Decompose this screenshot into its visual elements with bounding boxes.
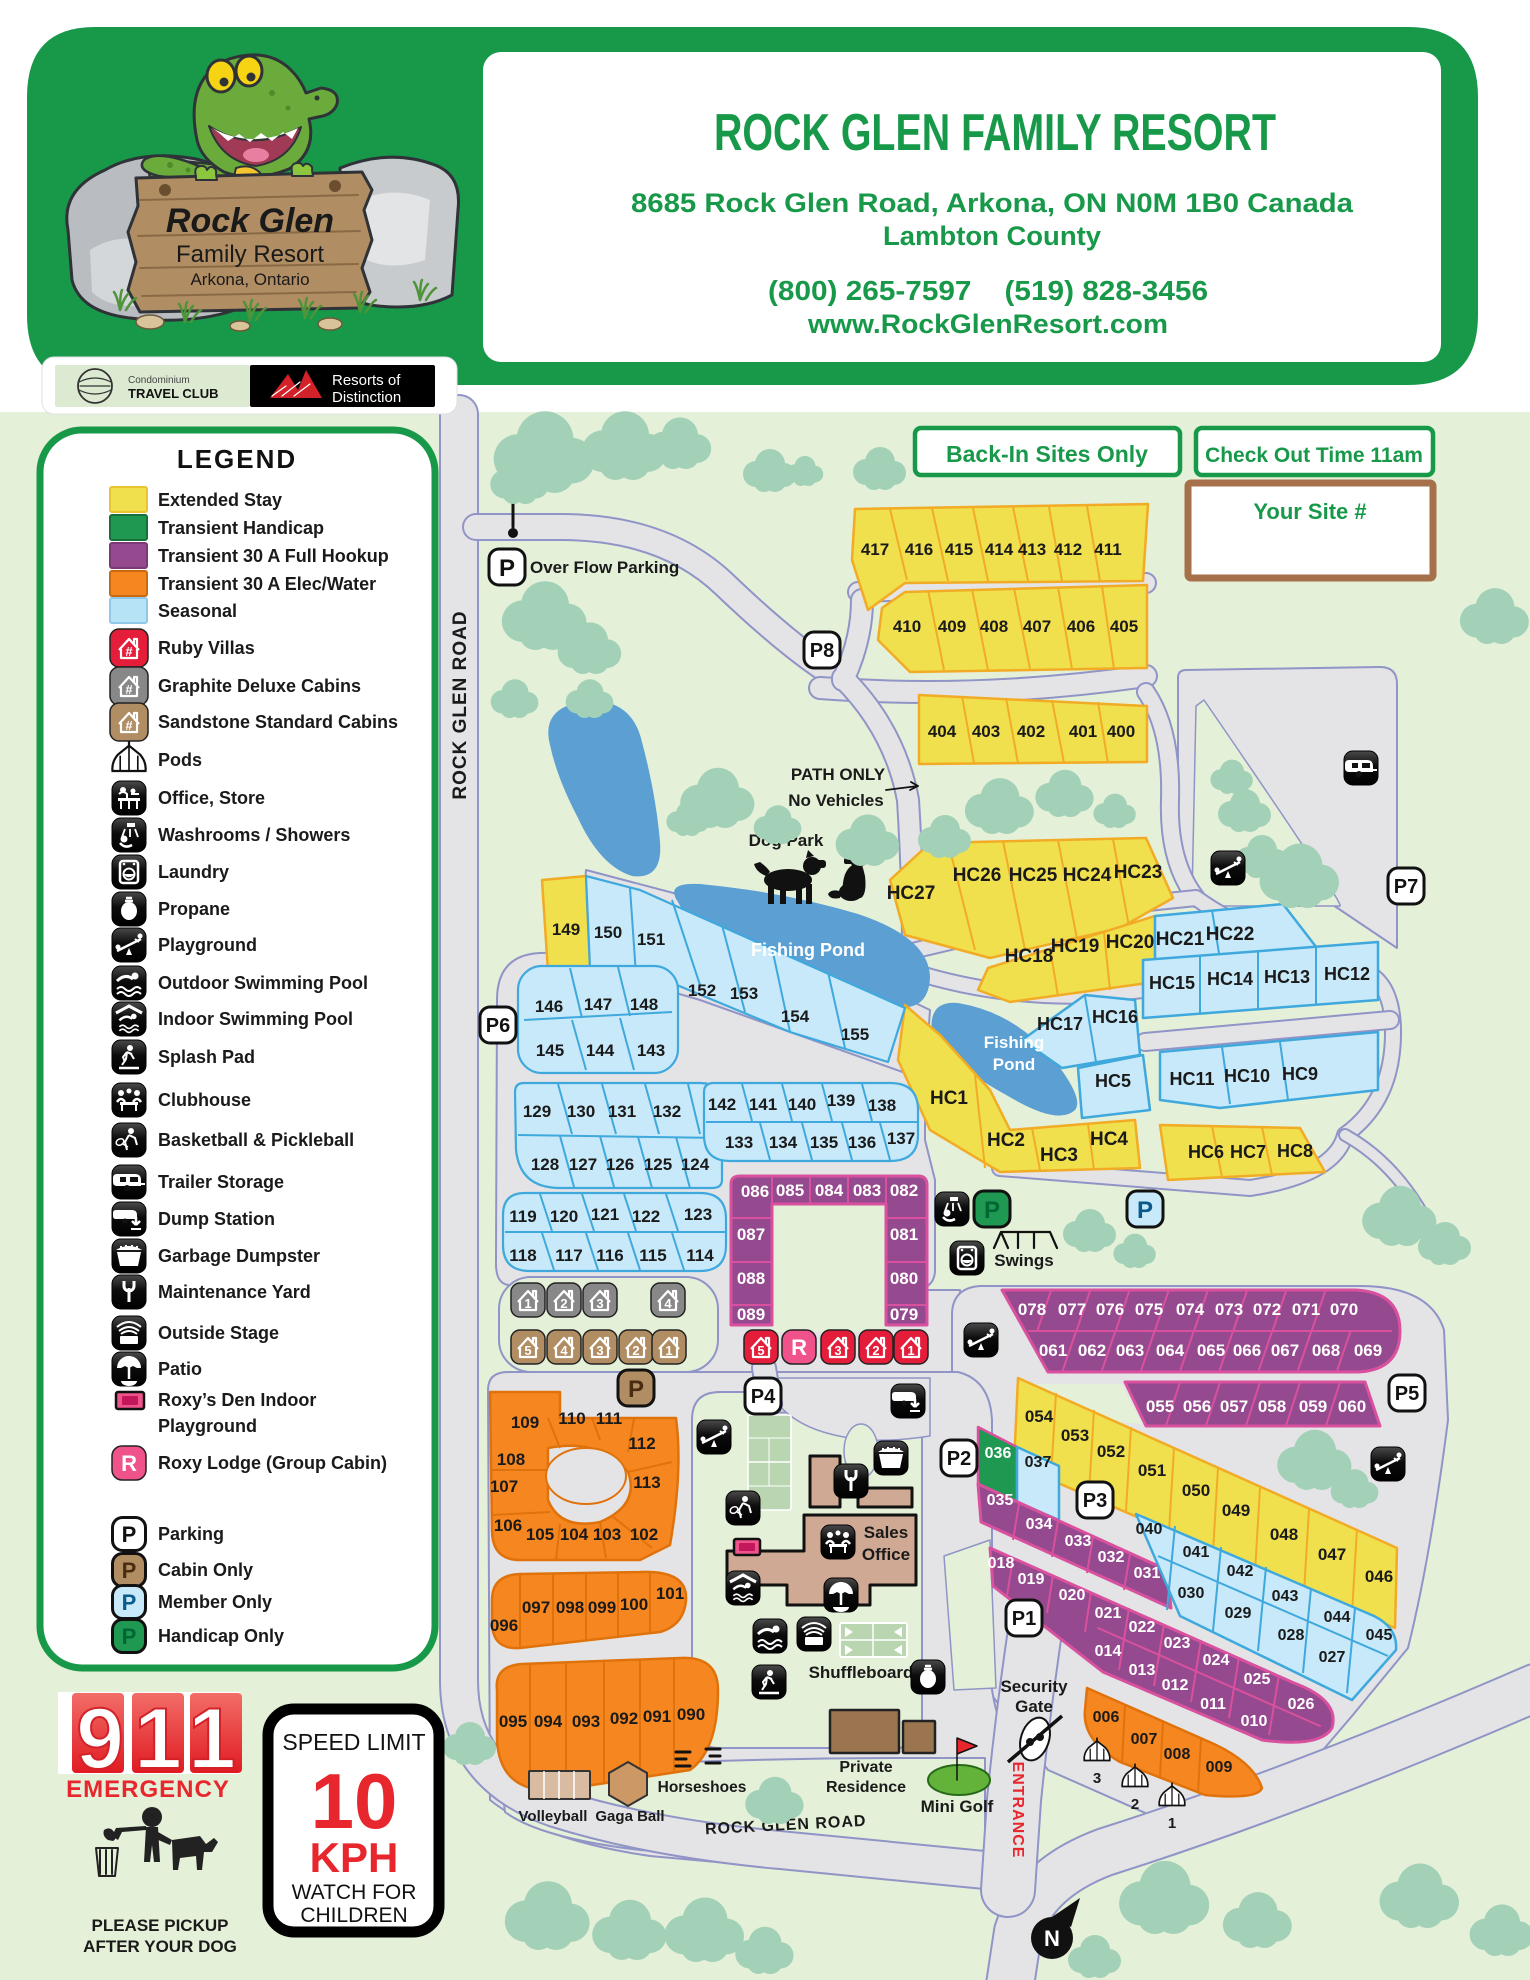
svg-text:095: 095 [499, 1712, 527, 1731]
svg-text:062: 062 [1078, 1341, 1106, 1360]
svg-text:2: 2 [872, 1343, 879, 1358]
svg-text:111: 111 [596, 1409, 623, 1428]
svg-text:055: 055 [1146, 1397, 1174, 1416]
svg-text:Transient 30 A Elec/Water: Transient 30 A Elec/Water [158, 574, 376, 594]
svg-text:HC13: HC13 [1264, 967, 1310, 987]
svg-text:P8: P8 [810, 640, 834, 662]
svg-text:ROCK GLEN FAMILY RESORT: ROCK GLEN FAMILY RESORT [714, 104, 1276, 162]
svg-text:4: 4 [664, 1296, 672, 1311]
svg-text:074: 074 [1176, 1300, 1205, 1319]
svg-text:053: 053 [1061, 1426, 1089, 1445]
svg-text:P: P [122, 1624, 137, 1649]
svg-text:5: 5 [757, 1343, 764, 1358]
svg-text:022: 022 [1129, 1619, 1156, 1636]
svg-text:ENTRANCE: ENTRANCE [1009, 1762, 1026, 1859]
svg-text:098: 098 [556, 1598, 584, 1617]
svg-text:AFTER YOUR DOG: AFTER YOUR DOG [83, 1937, 237, 1956]
svg-text:Office, Store: Office, Store [158, 788, 265, 808]
svg-text:104: 104 [560, 1525, 589, 1544]
svg-text:HC8: HC8 [1277, 1141, 1313, 1161]
svg-text:117: 117 [555, 1246, 582, 1265]
svg-text:1: 1 [134, 1691, 182, 1787]
svg-text:406: 406 [1067, 617, 1095, 636]
svg-text:P: P [628, 1376, 644, 1403]
svg-text:037: 037 [1025, 1454, 1052, 1471]
svg-text:HC10: HC10 [1224, 1066, 1270, 1086]
svg-text:403: 403 [972, 722, 1000, 741]
svg-text:HC23: HC23 [1114, 862, 1163, 883]
svg-text:054: 054 [1025, 1407, 1054, 1426]
svg-text:10: 10 [311, 1757, 398, 1845]
svg-text:006: 006 [1093, 1709, 1120, 1726]
svg-text:Pond: Pond [993, 1055, 1036, 1074]
svg-text:KPH: KPH [310, 1834, 399, 1881]
svg-text:107: 107 [490, 1477, 518, 1496]
svg-text:113: 113 [633, 1473, 660, 1492]
svg-text:044: 044 [1324, 1609, 1351, 1626]
svg-text:HC26: HC26 [953, 865, 1002, 886]
svg-text:TRAVEL CLUB: TRAVEL CLUB [128, 386, 219, 401]
svg-text:PATH ONLY: PATH ONLY [791, 765, 886, 784]
svg-text:#: # [125, 644, 133, 659]
svg-text:Resorts of: Resorts of [332, 372, 401, 389]
svg-text:041: 041 [1183, 1544, 1210, 1561]
svg-text:SPEED LIMIT: SPEED LIMIT [282, 1729, 425, 1755]
svg-text:047: 047 [1318, 1545, 1346, 1564]
svg-text:068: 068 [1312, 1341, 1340, 1360]
svg-text:Arkona, Ontario: Arkona, Ontario [190, 270, 309, 289]
svg-text:EMERGENCY: EMERGENCY [66, 1776, 230, 1803]
svg-text:R: R [791, 1335, 807, 1360]
svg-text:100: 100 [620, 1595, 648, 1614]
svg-text:Outdoor Swimming Pool: Outdoor Swimming Pool [158, 973, 368, 993]
svg-text:083: 083 [853, 1181, 881, 1200]
svg-text:138: 138 [868, 1096, 896, 1115]
svg-text:019: 019 [1018, 1571, 1045, 1588]
svg-text:P: P [122, 1522, 137, 1547]
svg-text:151: 151 [637, 930, 665, 949]
svg-text:094: 094 [534, 1712, 563, 1731]
svg-text:081: 081 [890, 1225, 918, 1244]
svg-text:P3: P3 [1083, 1490, 1107, 1512]
svg-text:Security: Security [1000, 1677, 1068, 1696]
svg-text:057: 057 [1220, 1397, 1248, 1416]
svg-text:401: 401 [1069, 722, 1097, 741]
svg-text:Condominium: Condominium [128, 375, 190, 386]
svg-text:075: 075 [1135, 1300, 1163, 1319]
svg-text:Playground: Playground [158, 1416, 257, 1436]
svg-text:066: 066 [1233, 1341, 1261, 1360]
svg-text:155: 155 [841, 1025, 869, 1044]
svg-text:154: 154 [781, 1007, 810, 1026]
svg-text:414: 414 [985, 540, 1014, 559]
svg-text:402: 402 [1017, 722, 1045, 741]
svg-text:146: 146 [535, 997, 563, 1016]
svg-text:140: 140 [788, 1095, 816, 1114]
svg-text:Graphite Deluxe Cabins: Graphite Deluxe Cabins [158, 676, 361, 696]
svg-text:034: 034 [1026, 1516, 1053, 1533]
svg-text:HC25: HC25 [1009, 865, 1058, 886]
svg-text:091: 091 [643, 1707, 671, 1726]
svg-text:051: 051 [1138, 1461, 1166, 1480]
svg-text:145: 145 [536, 1041, 564, 1060]
svg-text:144: 144 [586, 1041, 615, 1060]
svg-text:Your Site #: Your Site # [1253, 499, 1366, 524]
svg-text:131: 131 [608, 1102, 636, 1121]
svg-text:3: 3 [596, 1343, 603, 1358]
svg-text:Fishing: Fishing [984, 1033, 1044, 1052]
svg-text:026: 026 [1288, 1696, 1315, 1713]
svg-text:064: 064 [1156, 1341, 1185, 1360]
svg-text:099: 099 [588, 1598, 616, 1617]
svg-text:409: 409 [938, 617, 966, 636]
svg-text:Shuffleboard: Shuffleboard [809, 1663, 914, 1682]
svg-text:Sandstone Standard Cabins: Sandstone Standard Cabins [158, 712, 398, 732]
svg-text:088: 088 [737, 1269, 765, 1288]
svg-text:134: 134 [769, 1133, 798, 1152]
svg-text:P6: P6 [486, 1015, 510, 1037]
svg-text:009: 009 [1206, 1759, 1233, 1776]
svg-text:103: 103 [593, 1525, 621, 1544]
svg-text:020: 020 [1059, 1587, 1086, 1604]
svg-text:141: 141 [749, 1095, 777, 1114]
svg-text:Ruby Villas: Ruby Villas [158, 638, 255, 658]
svg-text:142: 142 [708, 1095, 736, 1114]
svg-text:Washrooms / Showers: Washrooms / Showers [158, 825, 350, 845]
svg-text:#: # [125, 682, 133, 697]
svg-text:010: 010 [1241, 1713, 1268, 1730]
svg-text:Patio: Patio [158, 1359, 202, 1379]
svg-text:108: 108 [497, 1450, 525, 1469]
svg-text:143: 143 [637, 1041, 665, 1060]
svg-text:3: 3 [596, 1296, 603, 1311]
svg-text:Playground: Playground [158, 935, 257, 955]
svg-text:056: 056 [1183, 1397, 1211, 1416]
svg-text:079: 079 [890, 1305, 918, 1324]
svg-text:Indoor Swimming Pool: Indoor Swimming Pool [158, 1009, 353, 1029]
svg-text:023: 023 [1164, 1635, 1191, 1652]
svg-text:014: 014 [1095, 1643, 1122, 1660]
svg-text:407: 407 [1023, 617, 1051, 636]
svg-text:2: 2 [632, 1343, 639, 1358]
svg-text:Parking: Parking [158, 1524, 224, 1544]
svg-text:Residence: Residence [826, 1779, 906, 1796]
svg-text:HC21: HC21 [1156, 929, 1205, 950]
svg-text:Propane: Propane [158, 899, 230, 919]
svg-text:115: 115 [639, 1246, 666, 1265]
svg-text:Dump Station: Dump Station [158, 1209, 275, 1229]
svg-text:Basketball & Pickleball: Basketball & Pickleball [158, 1130, 354, 1150]
svg-text:(800) 265-7597 (519) 828-34: (800) 265-7597 (519) 828-3456 [768, 275, 1208, 306]
svg-text:Cabin Only: Cabin Only [158, 1560, 253, 1580]
svg-text:105: 105 [526, 1525, 554, 1544]
svg-text:Fishing Pond: Fishing Pond [751, 940, 865, 960]
svg-text:032: 032 [1098, 1549, 1125, 1566]
svg-text:029: 029 [1225, 1605, 1252, 1622]
svg-text:1: 1 [188, 1691, 236, 1787]
svg-text:ROCK GLEN ROAD: ROCK GLEN ROAD [450, 610, 471, 799]
svg-text:018: 018 [988, 1555, 1015, 1572]
svg-text:#: # [125, 718, 133, 733]
svg-text:400: 400 [1107, 722, 1135, 741]
svg-text:HC9: HC9 [1282, 1064, 1318, 1084]
svg-text:110: 110 [558, 1409, 585, 1428]
svg-text:PLEASE PICKUP: PLEASE PICKUP [92, 1916, 229, 1935]
svg-text:096: 096 [490, 1616, 518, 1635]
svg-text:045: 045 [1366, 1627, 1393, 1644]
svg-text:122: 122 [632, 1207, 660, 1226]
svg-text:1: 1 [524, 1296, 531, 1311]
svg-text:4: 4 [560, 1343, 568, 1358]
svg-text:076: 076 [1096, 1300, 1124, 1319]
svg-text:Check Out Time 11am: Check Out Time 11am [1205, 444, 1423, 467]
svg-text:HC4: HC4 [1090, 1129, 1128, 1150]
svg-text:8685 Rock Glen Road, Arkona, O: 8685 Rock Glen Road, Arkona, ON N0M 1B0 … [631, 188, 1354, 218]
svg-text:Distinction: Distinction [332, 389, 401, 406]
svg-text:031: 031 [1134, 1565, 1161, 1582]
svg-text:Handicap Only: Handicap Only [158, 1626, 284, 1646]
svg-text:Transient 30 A Full Hookup: Transient 30 A Full Hookup [158, 546, 389, 566]
svg-text:102: 102 [630, 1525, 658, 1544]
svg-text:412: 412 [1054, 540, 1082, 559]
svg-text:1: 1 [1168, 1815, 1176, 1832]
svg-text:092: 092 [610, 1709, 638, 1728]
svg-text:HC24: HC24 [1063, 865, 1112, 886]
svg-text:118: 118 [509, 1246, 536, 1265]
svg-text:120: 120 [550, 1207, 578, 1226]
svg-text:128: 128 [531, 1155, 559, 1174]
svg-text:N: N [1044, 1926, 1060, 1951]
svg-text:093: 093 [572, 1712, 600, 1731]
svg-text:086: 086 [741, 1182, 769, 1201]
svg-text:123: 123 [684, 1205, 712, 1224]
svg-text:125: 125 [644, 1155, 672, 1174]
svg-text:060: 060 [1338, 1397, 1366, 1416]
svg-text:024: 024 [1203, 1652, 1230, 1669]
svg-text:050: 050 [1182, 1481, 1210, 1500]
svg-text:405: 405 [1110, 617, 1138, 636]
svg-text:P7: P7 [1394, 876, 1418, 898]
svg-text:127: 127 [569, 1155, 597, 1174]
svg-text:129: 129 [523, 1102, 551, 1121]
svg-text:130: 130 [567, 1102, 595, 1121]
svg-text:084: 084 [815, 1181, 844, 1200]
svg-text:404: 404 [928, 722, 957, 741]
svg-text:HC7: HC7 [1230, 1142, 1266, 1162]
svg-text:Horseshoes: Horseshoes [658, 1779, 747, 1796]
svg-text:114: 114 [686, 1246, 714, 1265]
svg-text:Private: Private [839, 1759, 892, 1776]
svg-text:P: P [122, 1558, 137, 1583]
svg-text:Transient Handicap: Transient Handicap [158, 518, 324, 538]
svg-text:No Vehicles: No Vehicles [788, 791, 883, 810]
svg-text:085: 085 [776, 1181, 804, 1200]
svg-text:150: 150 [594, 923, 622, 942]
svg-text:HC5: HC5 [1095, 1071, 1131, 1091]
svg-text:411: 411 [1094, 540, 1121, 559]
svg-text:P: P [122, 1590, 137, 1615]
svg-text:Member Only: Member Only [158, 1592, 272, 1612]
svg-text:087: 087 [737, 1225, 765, 1244]
svg-text:101: 101 [656, 1584, 684, 1603]
svg-text:080: 080 [890, 1269, 918, 1288]
svg-text:061: 061 [1039, 1341, 1067, 1360]
svg-text:HC17: HC17 [1037, 1014, 1083, 1034]
svg-text:109: 109 [511, 1413, 539, 1432]
svg-text:Over Flow Parking: Over Flow Parking [530, 558, 679, 577]
svg-text:Trailer Storage: Trailer Storage [158, 1172, 284, 1192]
svg-text:021: 021 [1095, 1605, 1122, 1622]
svg-text:Gate: Gate [1015, 1697, 1053, 1716]
svg-text:P: P [499, 555, 515, 582]
svg-text:Pods: Pods [158, 750, 202, 770]
svg-text:2: 2 [560, 1296, 567, 1311]
svg-text:HC19: HC19 [1051, 936, 1100, 957]
svg-text:Back-In Sites Only: Back-In Sites Only [946, 441, 1148, 467]
svg-text:P1: P1 [1012, 1608, 1036, 1630]
svg-text:077: 077 [1058, 1300, 1086, 1319]
svg-text:LEGEND: LEGEND [177, 444, 297, 474]
svg-text:139: 139 [827, 1091, 855, 1110]
svg-text:3: 3 [834, 1343, 841, 1358]
svg-text:Gaga Ball: Gaga Ball [595, 1808, 664, 1825]
svg-text:082: 082 [890, 1181, 918, 1200]
svg-text:HC11: HC11 [1169, 1069, 1214, 1089]
svg-text:043: 043 [1272, 1588, 1299, 1605]
svg-text:124: 124 [681, 1155, 710, 1174]
svg-text:WATCH FOR: WATCH FOR [292, 1881, 417, 1904]
svg-text:126: 126 [606, 1155, 634, 1174]
svg-text:2: 2 [1131, 1796, 1139, 1813]
svg-text:HC2: HC2 [987, 1130, 1025, 1151]
svg-text:415: 415 [945, 540, 973, 559]
svg-text:121: 121 [591, 1205, 619, 1224]
svg-text:HC3: HC3 [1040, 1145, 1078, 1166]
svg-text:073: 073 [1215, 1300, 1243, 1319]
svg-text:413: 413 [1018, 540, 1046, 559]
svg-text:HC1: HC1 [930, 1088, 968, 1109]
svg-text:9: 9 [76, 1691, 124, 1787]
svg-text:1: 1 [665, 1343, 672, 1358]
svg-text:046: 046 [1365, 1567, 1393, 1586]
svg-text:007: 007 [1131, 1731, 1158, 1748]
svg-text:059: 059 [1299, 1397, 1327, 1416]
svg-text:065: 065 [1197, 1341, 1225, 1360]
svg-text:408: 408 [980, 617, 1008, 636]
svg-text:P: P [1137, 1197, 1153, 1224]
svg-text:Lambton County: Lambton County [883, 221, 1101, 251]
svg-text:135: 135 [810, 1133, 838, 1152]
svg-text:Clubhouse: Clubhouse [158, 1090, 251, 1110]
svg-text:CHILDREN: CHILDREN [300, 1904, 407, 1927]
svg-text:HC14: HC14 [1207, 969, 1253, 989]
svg-text:030: 030 [1178, 1585, 1205, 1602]
svg-text:P5: P5 [1395, 1383, 1419, 1405]
svg-text:P4: P4 [751, 1386, 776, 1408]
svg-text:042: 042 [1227, 1563, 1254, 1580]
svg-text:417: 417 [861, 540, 889, 559]
svg-text:Family Resort: Family Resort [176, 241, 324, 268]
svg-text:Splash Pad: Splash Pad [158, 1047, 255, 1067]
svg-text:048: 048 [1270, 1525, 1298, 1544]
svg-text:HC12: HC12 [1324, 964, 1370, 984]
svg-text:HC15: HC15 [1149, 973, 1195, 993]
svg-text:052: 052 [1097, 1442, 1125, 1461]
svg-text:149: 149 [552, 920, 580, 939]
svg-text:152: 152 [688, 981, 716, 1000]
svg-text:137: 137 [887, 1129, 915, 1148]
svg-text:013: 013 [1129, 1662, 1156, 1679]
svg-text:HC22: HC22 [1206, 924, 1255, 945]
svg-text:Rock Glen: Rock Glen [166, 202, 334, 240]
svg-text:153: 153 [730, 984, 758, 1003]
svg-text:071: 071 [1292, 1300, 1320, 1319]
svg-text:027: 027 [1319, 1649, 1346, 1666]
svg-text:P: P [984, 1197, 1000, 1224]
svg-text:www.RockGlenResort.com: www.RockGlenResort.com [807, 309, 1168, 339]
svg-text:012: 012 [1162, 1677, 1189, 1694]
svg-text:072: 072 [1253, 1300, 1281, 1319]
svg-text:008: 008 [1164, 1746, 1191, 1763]
svg-text:Swings: Swings [994, 1251, 1054, 1270]
svg-text:033: 033 [1065, 1533, 1092, 1550]
svg-text:148: 148 [630, 995, 658, 1014]
svg-text:P2: P2 [947, 1448, 971, 1470]
svg-text:090: 090 [677, 1705, 705, 1724]
svg-text:Roxy Lodge (Group Cabin): Roxy Lodge (Group Cabin) [158, 1453, 387, 1473]
svg-text:HC6: HC6 [1188, 1142, 1224, 1162]
svg-text:R: R [121, 1451, 137, 1476]
svg-text:040: 040 [1136, 1521, 1163, 1538]
svg-text:HC27: HC27 [887, 883, 936, 904]
svg-text:HC18: HC18 [1005, 946, 1054, 967]
svg-text:089: 089 [737, 1305, 765, 1324]
svg-text:1: 1 [907, 1343, 914, 1358]
svg-text:HC16: HC16 [1092, 1007, 1138, 1027]
svg-text:Roxy’s Den Indoor: Roxy’s Den Indoor [158, 1390, 316, 1410]
svg-text:Maintenance Yard: Maintenance Yard [158, 1282, 311, 1302]
svg-text:Sales: Sales [864, 1523, 908, 1542]
svg-text:Seasonal: Seasonal [158, 601, 237, 621]
svg-text:410: 410 [893, 617, 921, 636]
svg-text:058: 058 [1258, 1397, 1286, 1416]
svg-text:416: 416 [905, 540, 933, 559]
svg-text:112: 112 [628, 1434, 655, 1453]
svg-text:Volleyball: Volleyball [519, 1808, 588, 1825]
svg-text:011: 011 [1200, 1696, 1226, 1713]
svg-text:147: 147 [584, 995, 612, 1014]
svg-text:097: 097 [522, 1598, 550, 1617]
svg-text:Garbage Dumpster: Garbage Dumpster [158, 1246, 320, 1266]
svg-text:Mini Golf: Mini Golf [921, 1797, 994, 1816]
svg-text:063: 063 [1116, 1341, 1144, 1360]
svg-text:070: 070 [1330, 1300, 1358, 1319]
svg-text:116: 116 [596, 1246, 623, 1265]
svg-text:Outside Stage: Outside Stage [158, 1323, 279, 1343]
svg-text:106: 106 [494, 1516, 522, 1535]
svg-text:Office: Office [862, 1545, 910, 1564]
svg-text:5: 5 [524, 1343, 531, 1358]
svg-text:3: 3 [1093, 1770, 1101, 1787]
svg-text:132: 132 [653, 1102, 681, 1121]
svg-text:069: 069 [1354, 1341, 1382, 1360]
svg-text:078: 078 [1018, 1300, 1046, 1319]
svg-text:119: 119 [509, 1207, 536, 1226]
svg-text:133: 133 [725, 1133, 753, 1152]
svg-text:HC20: HC20 [1106, 932, 1155, 953]
svg-text:035: 035 [987, 1492, 1014, 1509]
svg-text:025: 025 [1244, 1671, 1271, 1688]
